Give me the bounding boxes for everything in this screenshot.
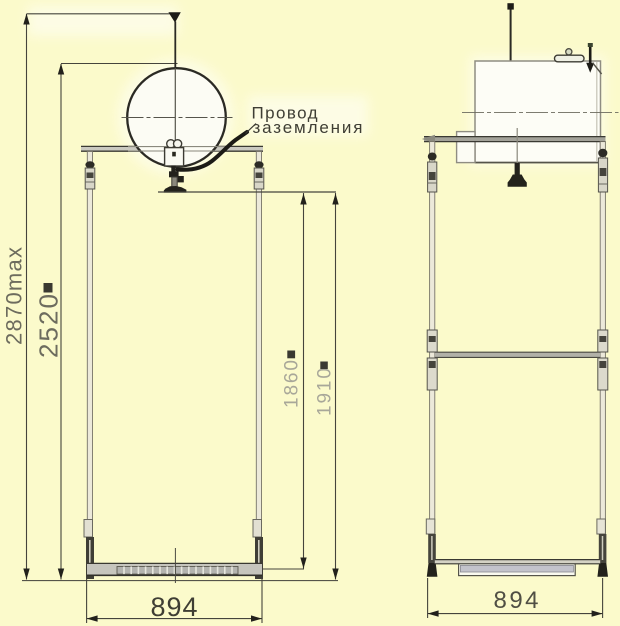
svg-text:1910: 1910 bbox=[315, 368, 336, 416]
svg-text:1860: 1860 bbox=[282, 360, 303, 408]
svg-text:894: 894 bbox=[151, 592, 198, 622]
svg-text:заземления: заземления bbox=[253, 118, 363, 137]
svg-text:894: 894 bbox=[494, 587, 539, 614]
svg-text:2870max: 2870max bbox=[2, 247, 27, 345]
